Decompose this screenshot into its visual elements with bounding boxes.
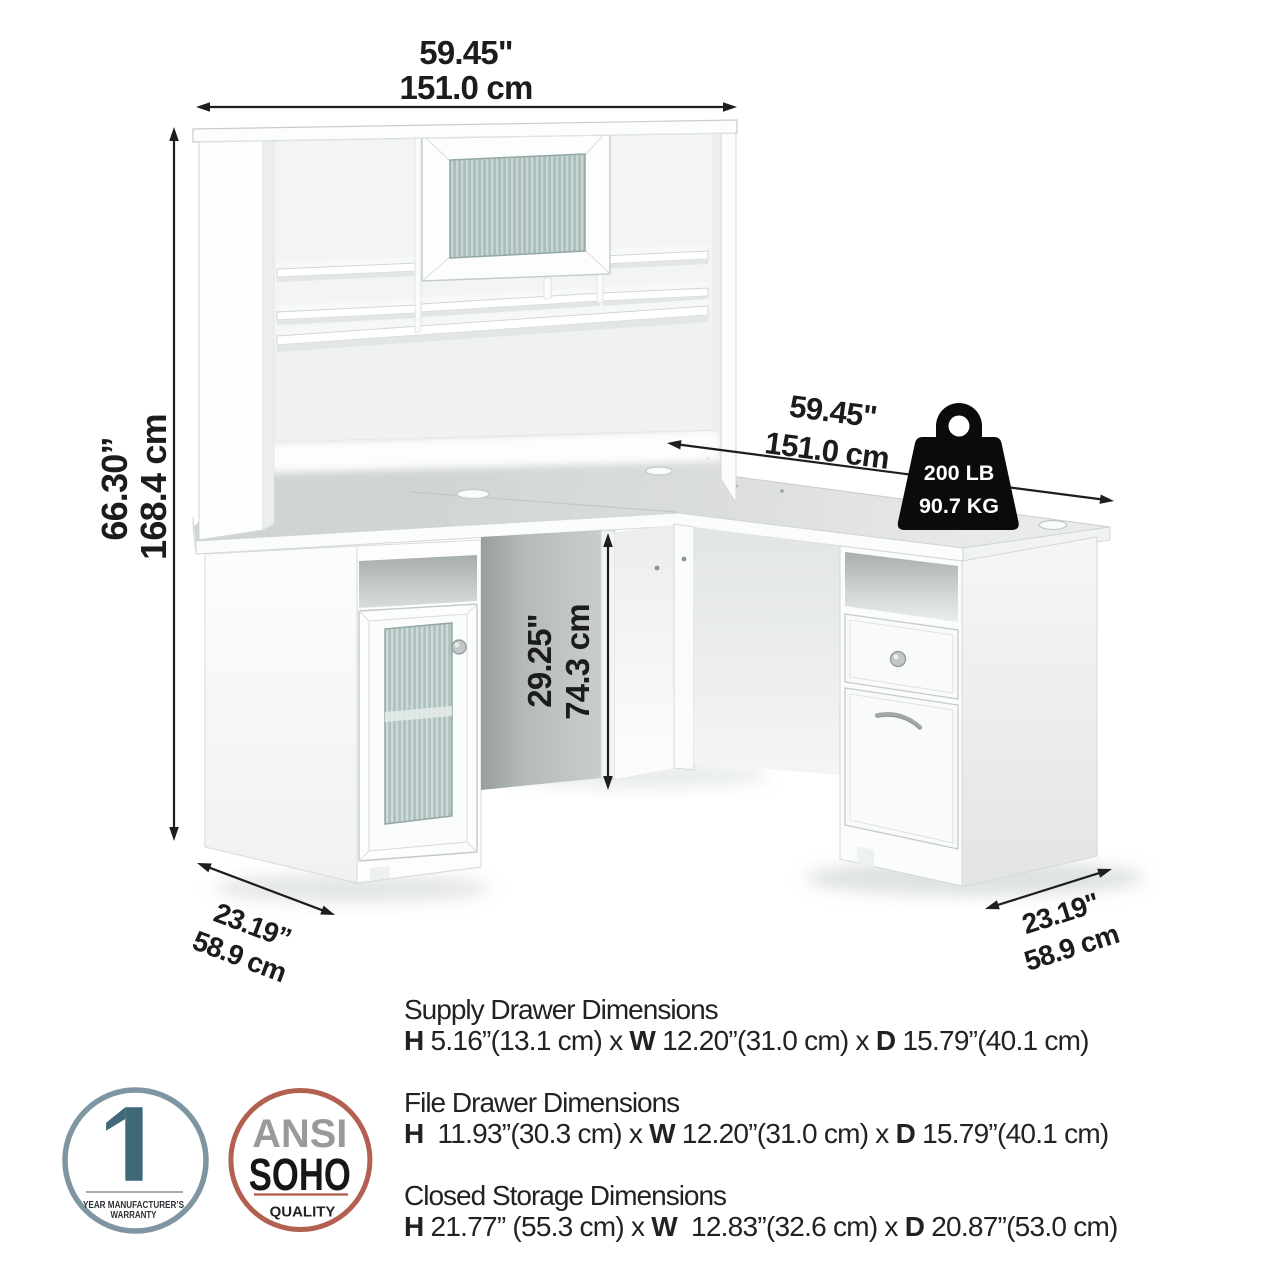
- svg-text:Closed Storage Dimensions: Closed Storage Dimensions: [404, 1180, 726, 1211]
- svg-text:QUALITY: QUALITY: [270, 1204, 336, 1221]
- svg-text:H 5.16”(13.1 cm) x W 12.20”(31: H 5.16”(13.1 cm) x W 12.20”(31.0 cm) x D…: [404, 1025, 1089, 1056]
- svg-text:Supply Drawer Dimensions: Supply Drawer Dimensions: [404, 994, 718, 1025]
- svg-text:59.45": 59.45": [419, 34, 512, 71]
- svg-text:SOHO: SOHO: [249, 1149, 351, 1200]
- svg-text:200 LB: 200 LB: [924, 461, 995, 485]
- svg-text:74.3 cm: 74.3 cm: [559, 604, 596, 720]
- svg-text:151.0 cm: 151.0 cm: [399, 69, 532, 106]
- svg-text:WARRANTY: WARRANTY: [111, 1209, 157, 1221]
- svg-text:H 11.93”(30.3 cm) x W 12.20”(: H 11.93”(30.3 cm) x W 12.20”(31.0 cm) x …: [404, 1118, 1109, 1149]
- svg-text:168.4 cm: 168.4 cm: [133, 414, 174, 560]
- svg-text:66.30”: 66.30”: [94, 437, 135, 540]
- svg-text:90.7 KG: 90.7 KG: [919, 494, 999, 518]
- svg-text:59.45": 59.45": [787, 389, 878, 435]
- svg-text:H 21.77” (55.3 cm) x W 12.83”: H 21.77” (55.3 cm) x W 12.83”(32.6 cm) x…: [404, 1211, 1118, 1242]
- svg-text:File Drawer Dimensions: File Drawer Dimensions: [404, 1087, 679, 1118]
- svg-text:29.25": 29.25": [521, 614, 558, 707]
